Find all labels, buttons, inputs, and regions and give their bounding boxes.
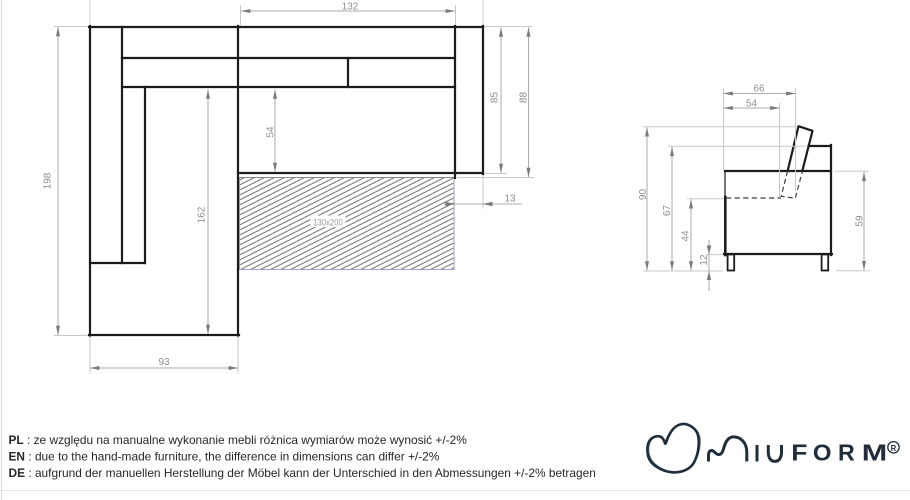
svg-text:PL : ze względu na manualne wy: PL : ze względu na manualne wykonanie me… (9, 433, 468, 447)
svg-text:54: 54 (266, 126, 277, 138)
svg-text:12: 12 (699, 254, 710, 266)
svg-text:R: R (838, 440, 855, 466)
svg-text:44: 44 (681, 230, 692, 242)
svg-text:85: 85 (490, 92, 501, 104)
svg-text:R: R (891, 444, 897, 453)
svg-text:F: F (791, 441, 807, 466)
svg-text:59: 59 (854, 215, 865, 227)
svg-text:93: 93 (158, 357, 170, 368)
svg-text:M: M (862, 440, 887, 465)
svg-text:O: O (813, 440, 832, 465)
svg-text:162: 162 (197, 206, 208, 223)
svg-text:67: 67 (662, 205, 673, 217)
svg-text:132: 132 (342, 2, 359, 13)
svg-text:90: 90 (638, 189, 649, 201)
svg-text:66: 66 (753, 84, 765, 95)
svg-text:13: 13 (504, 194, 516, 205)
svg-text:130x200: 130x200 (313, 217, 343, 228)
svg-text:EN : due to the hand-made furn: EN : due to the hand-made furniture, the… (9, 450, 440, 464)
svg-text:198: 198 (43, 172, 54, 189)
svg-text:88: 88 (519, 92, 530, 104)
svg-text:DE : aufgrund der manuellen He: DE : aufgrund der manuellen Herstellung … (9, 466, 596, 480)
svg-text:54: 54 (746, 98, 758, 109)
